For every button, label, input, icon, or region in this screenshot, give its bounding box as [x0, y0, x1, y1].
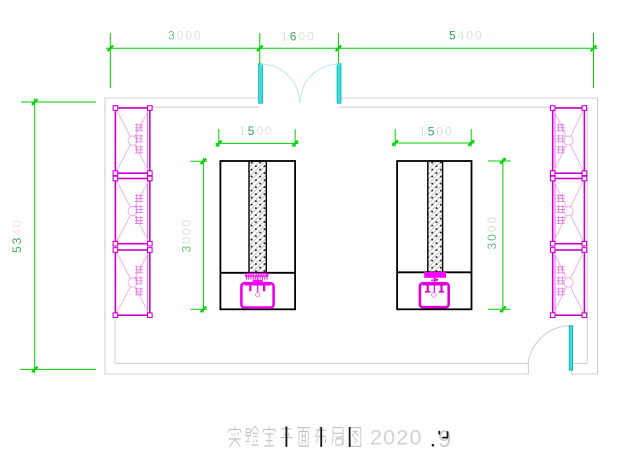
svg-text:5340: 5340: [10, 218, 24, 253]
svg-text:3000: 3000: [485, 215, 499, 250]
svg-text:1500: 1500: [419, 125, 454, 139]
svg-text:1500: 1500: [239, 124, 274, 138]
svg-text:1600: 1600: [281, 30, 316, 44]
svg-text:2020: 2020: [370, 426, 423, 450]
svg-text:5400: 5400: [449, 29, 484, 43]
svg-text:9: 9: [438, 426, 451, 453]
svg-text:3000: 3000: [180, 218, 194, 253]
svg-text:3000: 3000: [168, 29, 203, 43]
